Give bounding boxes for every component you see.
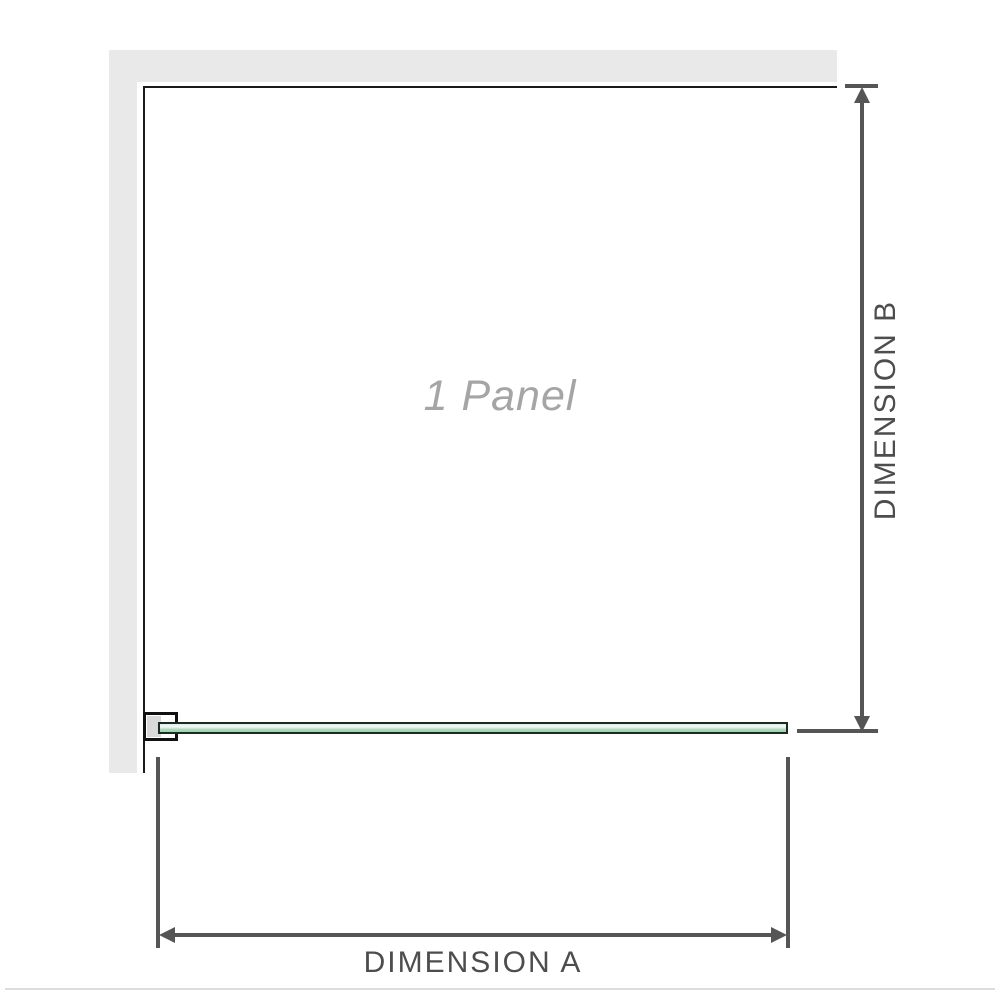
dimension-a-right-tick: [786, 757, 790, 948]
panel-outline-top: [143, 86, 837, 88]
wall-top-bar: [109, 50, 837, 82]
dimension-a-label: DIMENSION A: [323, 946, 623, 980]
page-bottom-divider: [5, 988, 995, 990]
shower-panel-diagram: 1 Panel DIMENSION B DIMENSION A: [0, 0, 1000, 1000]
glass-panel: [158, 722, 788, 734]
dimension-a-arrow-right-icon: [771, 927, 787, 943]
dimension-a-line: [172, 933, 774, 937]
panel-count-label: 1 Panel: [300, 372, 700, 421]
dimension-b-line: [860, 100, 864, 720]
dimension-b-arrow-down-icon: [854, 716, 870, 732]
wall-left-bar: [109, 50, 137, 773]
panel-outline-left: [143, 86, 145, 773]
dimension-a-arrow-left-icon: [159, 927, 175, 943]
dimension-b-label: DIMENSION B: [871, 260, 901, 560]
dimension-a-left-tick: [156, 757, 160, 948]
dimension-b-arrow-up-icon: [854, 87, 870, 103]
